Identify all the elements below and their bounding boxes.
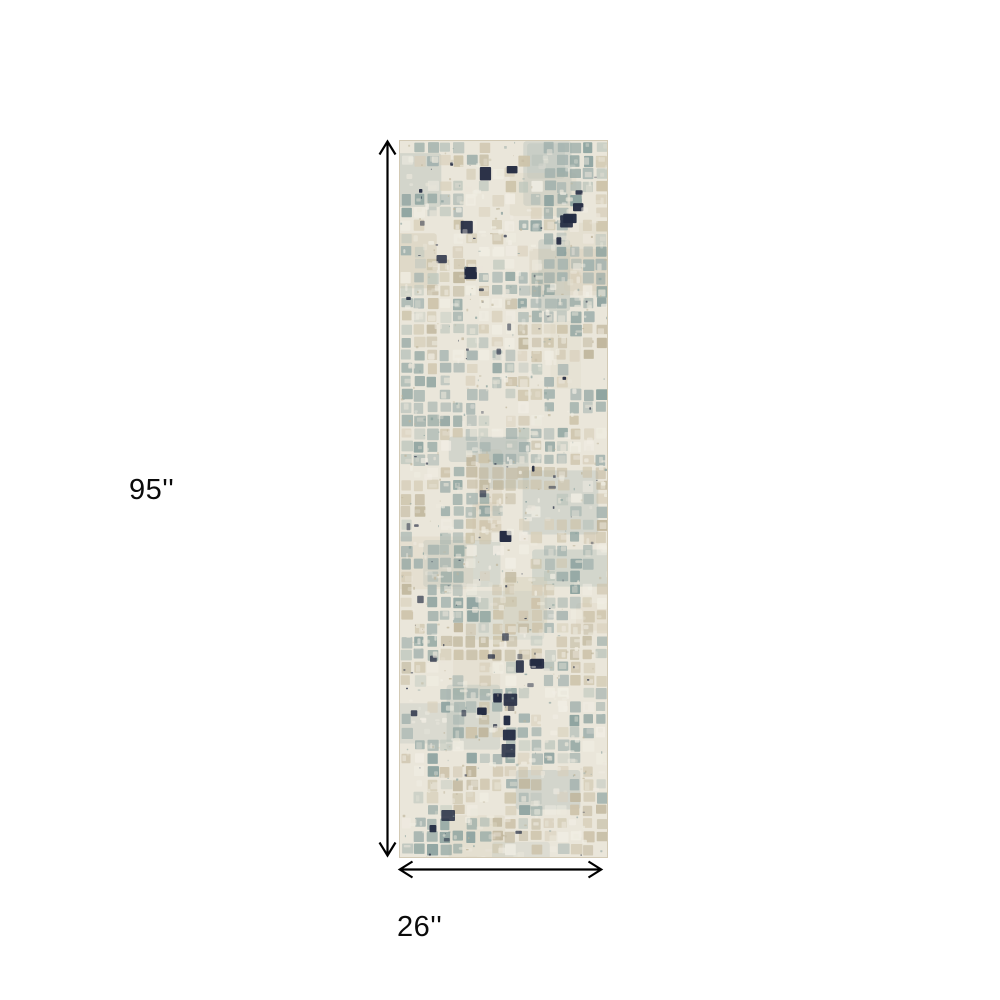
arrow-head-right-icon bbox=[589, 862, 602, 878]
arrow-head-down-icon bbox=[380, 843, 396, 856]
rug-pattern bbox=[400, 141, 607, 857]
height-arrow bbox=[380, 142, 396, 856]
width-dimension-label: 26'' bbox=[397, 911, 442, 944]
rug-image bbox=[399, 140, 608, 858]
dimension-diagram: 95'' 26'' bbox=[0, 0, 1000, 1000]
arrow-head-left-icon bbox=[400, 862, 413, 878]
width-arrow bbox=[400, 862, 601, 878]
height-dimension-label: 95'' bbox=[129, 474, 174, 507]
arrow-head-up-icon bbox=[380, 142, 396, 155]
